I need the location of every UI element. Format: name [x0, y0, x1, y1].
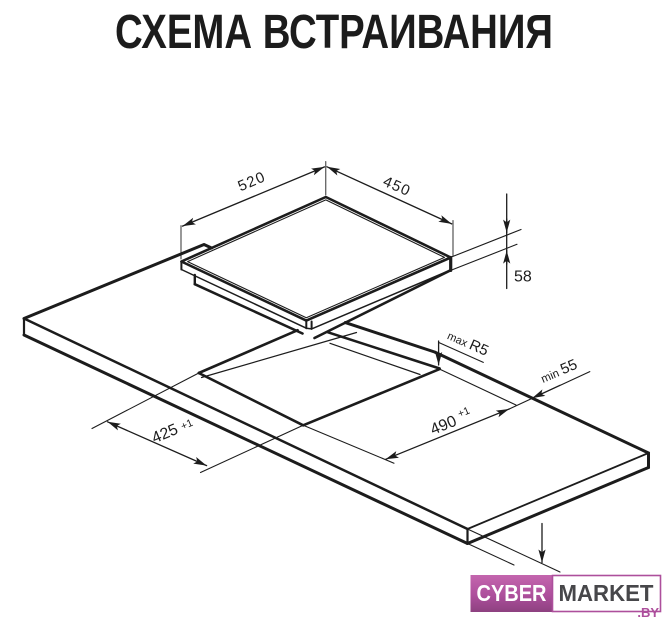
svg-text:MARKET: MARKET	[559, 580, 654, 606]
svg-text:СХЕМА ВСТРАИВАНИЯ: СХЕМА ВСТРАИВАНИЯ	[115, 6, 553, 59]
svg-text:58: 58	[514, 269, 532, 286]
svg-text:.BY: .BY	[637, 605, 659, 620]
svg-text:CYBER: CYBER	[477, 580, 547, 606]
